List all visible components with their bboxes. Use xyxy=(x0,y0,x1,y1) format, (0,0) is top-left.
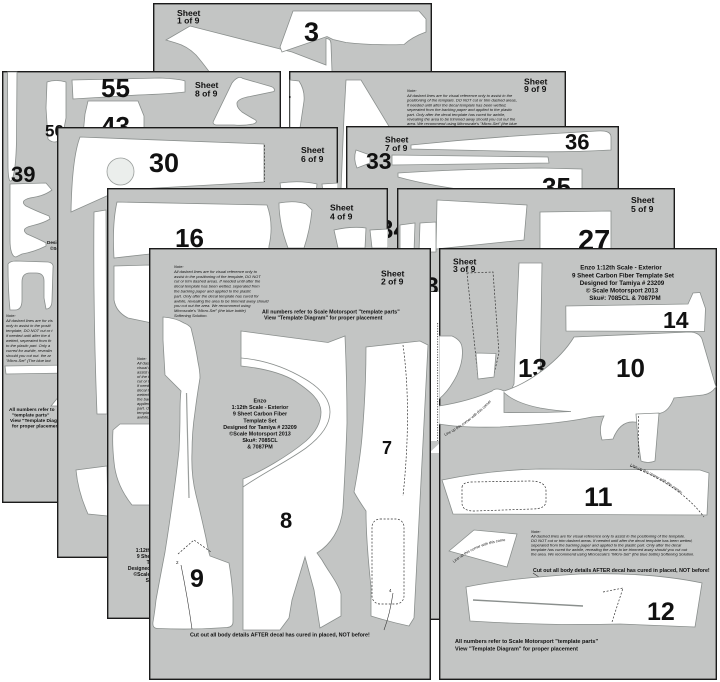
svg-text:9 Sheet Carbon Fiber: 9 Sheet Carbon Fiber xyxy=(233,412,288,418)
svg-text:4 of 9: 4 of 9 xyxy=(330,211,353,221)
svg-text:36: 36 xyxy=(565,130,589,155)
svg-text:1 of 9: 1 of 9 xyxy=(177,16,200,26)
svg-text:Sku#: 7085CL: Sku#: 7085CL xyxy=(242,438,278,444)
svg-text:& 7087PM: & 7087PM xyxy=(247,445,273,451)
svg-text:the area. We recommend using M: the area. We recommend using Microscale'… xyxy=(531,552,694,557)
svg-text:10: 10 xyxy=(616,353,645,383)
svg-text:11: 11 xyxy=(584,482,613,512)
svg-text:9 of 9: 9 of 9 xyxy=(524,84,547,94)
svg-text:© Scale Motorsport 2013: © Scale Motorsport 2013 xyxy=(586,288,659,295)
svg-text:All numbers refer to Scale Mot: All numbers refer to Scale Motorsport "t… xyxy=(455,639,598,645)
svg-text:5 of 9: 5 of 9 xyxy=(631,204,654,214)
svg-text:All numbers refer to Scale Mot: All numbers refer to Scale Motorsport "t… xyxy=(262,309,400,315)
svg-text:Enzo 1:12th Scale - Exterior: Enzo 1:12th Scale - Exterior xyxy=(580,265,662,272)
svg-text:View "Template Diagram" for pr: View "Template Diagram" for proper place… xyxy=(455,647,578,653)
svg-text:Cut out all body details AFTER: Cut out all body details AFTER decal has… xyxy=(190,633,370,639)
svg-text:View "Template Diag: View "Template Diag xyxy=(10,418,57,424)
svg-text:9 Sheet Carbon Fiber Template: 9 Sheet Carbon Fiber Template Set xyxy=(572,273,674,280)
svg-text:Softening Solution.: Softening Solution. xyxy=(174,313,208,318)
svg-text:Cut out all body details AFTER: Cut out all body details AFTER decal has… xyxy=(533,568,710,574)
svg-text:Sku#: 7085CL & 7087PM: Sku#: 7085CL & 7087PM xyxy=(589,295,660,302)
svg-text:7: 7 xyxy=(382,438,392,458)
svg-text:12: 12 xyxy=(647,598,675,626)
svg-text:9: 9 xyxy=(190,565,204,593)
svg-text:55: 55 xyxy=(101,73,130,103)
svg-text:All numbers refer to: All numbers refer to xyxy=(9,407,55,413)
svg-text:6 of 9: 6 of 9 xyxy=(301,154,324,164)
svg-text:14: 14 xyxy=(663,307,689,333)
svg-text:"template parts": "template parts" xyxy=(12,413,49,419)
svg-text:8 of 9: 8 of 9 xyxy=(195,88,218,98)
svg-text:"Micro-Set" (The blue bot: "Micro-Set" (The blue bot xyxy=(6,358,52,363)
svg-text:3: 3 xyxy=(304,17,319,47)
svg-text:30: 30 xyxy=(149,148,179,178)
svg-text:8: 8 xyxy=(280,508,292,533)
svg-text:View "Template Diagram" for pr: View "Template Diagram" for proper place… xyxy=(264,316,383,322)
svg-text:Designed for Tamiya # 23209: Designed for Tamiya # 23209 xyxy=(223,425,297,431)
svg-text:33: 33 xyxy=(366,148,392,174)
svg-text:2 of 9: 2 of 9 xyxy=(381,277,404,287)
svg-text:1:12th Scale - Exterior: 1:12th Scale - Exterior xyxy=(232,405,290,411)
svg-text:©Scale Motorsport 2013: ©Scale Motorsport 2013 xyxy=(229,431,291,438)
svg-text:Enzo: Enzo xyxy=(254,399,268,405)
svg-text:for proper placemen: for proper placemen xyxy=(12,424,58,430)
svg-text:Template Set: Template Set xyxy=(243,418,276,424)
svg-text:Designed for Tamiya # 23209: Designed for Tamiya # 23209 xyxy=(580,280,665,287)
